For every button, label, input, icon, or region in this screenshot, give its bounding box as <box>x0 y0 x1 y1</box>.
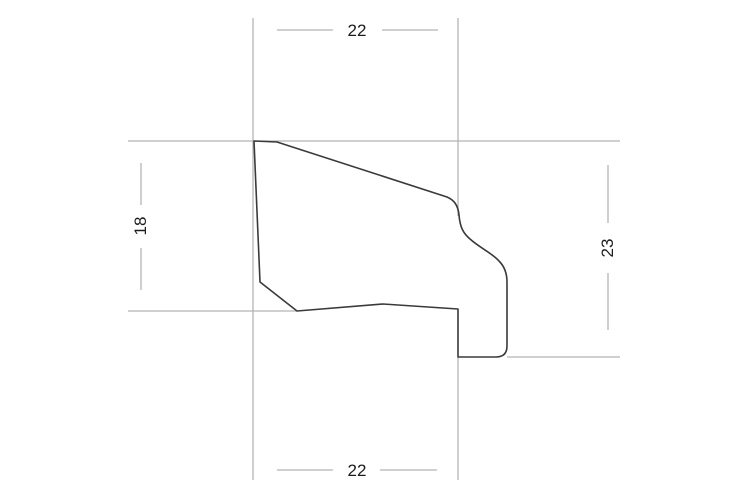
profile-drawing-svg: 22 18 23 22 <box>0 0 750 500</box>
profile-outline <box>254 141 507 357</box>
dimension-label-right-height: 23 <box>598 239 617 258</box>
dimension-labels: 22 18 23 22 <box>131 21 617 480</box>
dimension-label-left-height: 18 <box>131 217 150 236</box>
technical-drawing-canvas: 22 18 23 22 <box>0 0 750 500</box>
extension-lines <box>128 18 620 480</box>
dimension-label-bottom-width: 22 <box>348 461 367 480</box>
dimension-label-top-width: 22 <box>348 21 367 40</box>
dimension-lines <box>141 30 608 470</box>
